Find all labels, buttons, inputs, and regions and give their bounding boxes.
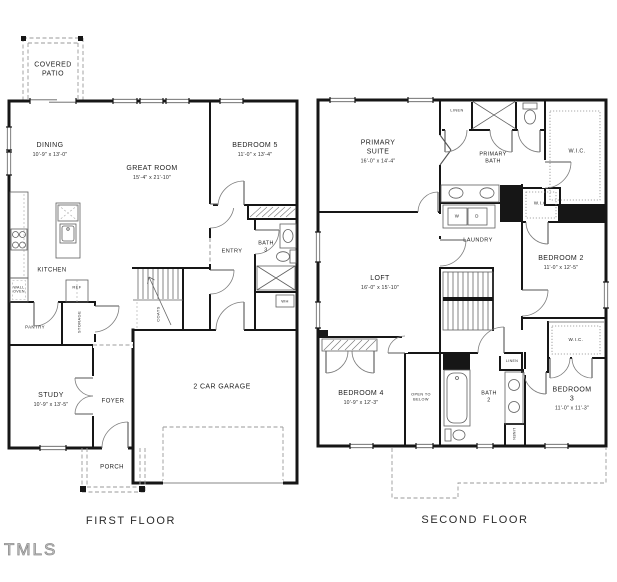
refrigerator bbox=[66, 280, 88, 302]
room-label-primary-suite: PRIMARY SUITE16'-0" x 14'-4" bbox=[361, 140, 396, 165]
floorplan-linework bbox=[0, 0, 617, 582]
room-label-primary-bath: PRIMARY BATH bbox=[479, 151, 506, 165]
label-linen-side: LINEN bbox=[512, 428, 516, 440]
room-label-loft: LOFT16'-0" x 15'-10" bbox=[361, 275, 399, 291]
room-label-foyer: FOYER bbox=[102, 398, 125, 406]
roof-outline bbox=[392, 448, 606, 498]
sink-icon bbox=[449, 188, 463, 198]
kitchen-island bbox=[56, 203, 80, 258]
room-label-bedroom2: BEDROOM 211'-0" x 12'-5" bbox=[538, 255, 584, 271]
kitchen-counter bbox=[10, 192, 28, 278]
room-label-covered-patio: COVERED PATIO bbox=[34, 61, 71, 79]
toilet-icon bbox=[277, 252, 290, 262]
label-dryer: D bbox=[475, 213, 479, 219]
sink-icon bbox=[283, 230, 293, 243]
label-washer: W bbox=[455, 213, 460, 219]
room-label-wic-bedroom3: W.I.C. bbox=[569, 337, 584, 343]
floorplan-canvas: COVERED PATIO DINING10'-9" x 13'-0" GREA… bbox=[0, 0, 617, 582]
tmls-watermark: TMLS bbox=[4, 540, 57, 560]
label-pantry: PANTRY bbox=[25, 324, 45, 330]
tub-icon bbox=[444, 370, 470, 426]
label-coats: COATS bbox=[156, 306, 161, 321]
primary-shower bbox=[472, 101, 516, 129]
label-storage: STORAGE bbox=[77, 311, 82, 333]
label-wh: WH bbox=[281, 299, 288, 304]
primary-vanity bbox=[441, 185, 499, 202]
first-floor-title: FIRST FLOOR bbox=[86, 515, 176, 527]
label-linen-bath: LINEN bbox=[506, 359, 518, 363]
garage-door bbox=[163, 427, 283, 486]
room-label-bath2: BATH 2 bbox=[481, 390, 497, 404]
second-floor-plan bbox=[315, 97, 609, 498]
label-linen-top: LINEN bbox=[450, 109, 463, 114]
room-label-wic-primary: W.I.C. bbox=[568, 149, 585, 156]
room-label-entry: ENTRY bbox=[222, 249, 243, 256]
sink-icon bbox=[509, 380, 520, 391]
room-label-kitchen: KITCHEN bbox=[37, 267, 66, 275]
label-wall-oven: WALL OVEN bbox=[13, 286, 25, 295]
primary-toilet bbox=[523, 103, 537, 124]
first-floor-plan bbox=[6, 36, 297, 492]
sink-icon bbox=[509, 402, 520, 413]
room-label-porch: PORCH bbox=[100, 464, 124, 472]
room-label-wic-hall: W.I.C. bbox=[534, 200, 548, 206]
sink-icon bbox=[480, 188, 494, 198]
room-label-study: STUDY10'-9" x 13'-5" bbox=[34, 392, 69, 408]
room-label-dining: DINING10'-9" x 13'-0" bbox=[33, 142, 68, 158]
room-label-bedroom4: BEDROOM 410'-9" x 12'-3" bbox=[338, 390, 384, 406]
room-label-bedroom5: BEDROOM 511'-0" x 13'-4" bbox=[232, 142, 278, 158]
bedroom5-closet bbox=[250, 207, 296, 217]
label-ref: REF bbox=[72, 285, 81, 290]
second-floor-stairs bbox=[443, 272, 493, 330]
room-label-laundry: LAUNDRY bbox=[463, 238, 492, 245]
toilet-icon bbox=[453, 430, 465, 440]
room-label-great-room: GREAT ROOM15'-4" x 21'-10" bbox=[126, 165, 177, 181]
wic-primary-outline bbox=[550, 111, 600, 200]
room-label-bedroom3: BEDROOM 311'-0" x 11'-3" bbox=[550, 387, 595, 412]
washer-dryer bbox=[443, 205, 495, 228]
room-label-garage: 2 CAR GARAGE bbox=[193, 384, 250, 393]
room-label-bath3: BATH 3 bbox=[258, 240, 274, 254]
second-floor-title: SECOND FLOOR bbox=[421, 514, 528, 526]
bath3-fixtures bbox=[257, 224, 296, 290]
room-label-open-to-below: OPEN TO BELOW bbox=[411, 392, 431, 401]
